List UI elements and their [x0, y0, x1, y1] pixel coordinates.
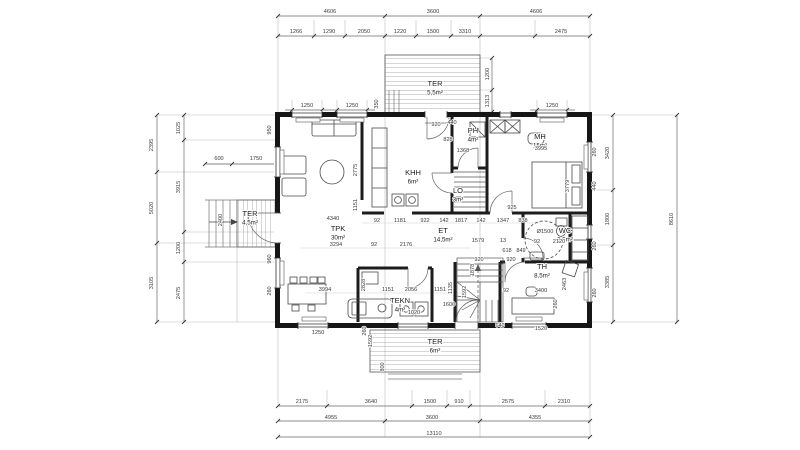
dimension-label: 1500	[427, 29, 439, 35]
dimension-label: 2575	[502, 399, 514, 405]
dimension-label: 1520	[535, 326, 547, 332]
dimension-label: 4955	[325, 415, 337, 421]
room-area-label: 4,5m²	[242, 220, 258, 227]
dryer	[406, 194, 418, 206]
dimension-label: 1151	[434, 287, 446, 293]
dimension-label: 4355	[529, 415, 541, 421]
khh-door	[432, 173, 452, 193]
sofa	[312, 120, 356, 136]
dimension-label: 1266	[290, 29, 302, 35]
window	[292, 111, 322, 118]
dimension-label: 920	[431, 122, 440, 128]
dimension-label: 260	[553, 299, 559, 308]
room-area-label: 14,5m²	[433, 237, 452, 244]
armchair	[282, 156, 306, 174]
dimension-label: 4606	[530, 9, 542, 15]
dimension-label: 440	[447, 120, 456, 126]
dimension-label: 1600	[443, 302, 455, 308]
dimension-label: 350	[374, 99, 380, 108]
dimension-label: 1592	[368, 335, 374, 347]
dimension-label: 2175	[296, 399, 308, 405]
kitchen-island	[348, 299, 392, 318]
dimension-label: 92	[503, 288, 509, 294]
dimension-label: 2120	[553, 239, 565, 245]
tekn-door	[408, 268, 428, 288]
room-area-label: 5,5m²	[427, 90, 443, 97]
window	[537, 111, 567, 118]
dimension-label: 2050	[358, 29, 370, 35]
dimension-label: 2400	[218, 214, 224, 226]
dimension-label: 3915	[176, 181, 182, 193]
room-name-label: TER	[243, 209, 259, 218]
dimension-label: 1878	[470, 264, 476, 276]
dimension-label: 1579	[472, 238, 484, 244]
window	[337, 111, 367, 118]
entrance-door	[427, 117, 449, 139]
dimension-label: 3400	[535, 288, 547, 294]
terrace-decks	[237, 55, 480, 379]
dimension-label: 142	[476, 218, 485, 224]
wardrobe	[490, 120, 505, 133]
dimension-label: 2310	[558, 399, 570, 405]
dimension-label: 2395	[149, 139, 155, 151]
dimension-label: 1151	[353, 199, 359, 211]
dimension-label: 1592	[462, 286, 468, 298]
dimension-label: 3994	[319, 287, 331, 293]
dimension-label: 2828	[361, 279, 367, 291]
dimension-label: 142	[439, 218, 448, 224]
dimension-label: 1220	[394, 29, 406, 35]
dimension-label: 849	[516, 248, 525, 254]
dimension-label: 1250	[312, 330, 324, 336]
room-name-label: PH	[468, 126, 478, 135]
dimension-label: 2176	[400, 242, 412, 248]
shelving	[572, 216, 588, 260]
dining-table	[288, 277, 326, 311]
room-area-label: 6m²	[430, 348, 441, 355]
dimension-label: 1025	[176, 122, 182, 134]
dimension-label: 3995	[535, 146, 547, 152]
dimension-label: 1250	[346, 103, 358, 109]
room-name-label: ET	[438, 226, 448, 235]
dimension-label: 3640	[365, 399, 377, 405]
window	[500, 111, 511, 118]
dimension-label: 1368	[457, 148, 469, 154]
door-opening	[425, 111, 447, 118]
dimension-label: 3385	[605, 276, 611, 288]
dimension-label: 4340	[327, 216, 339, 222]
dimension-label: 2056	[405, 287, 417, 293]
dimension-label: 3105	[149, 277, 155, 289]
dimension-label: 1200	[485, 68, 491, 80]
dimension-label: 800	[380, 362, 386, 371]
dimension-label: Ø1500	[537, 229, 554, 235]
room-name-label: TH	[537, 262, 547, 271]
dimension-label: 3600	[427, 9, 439, 15]
dimension-label: 1181	[394, 218, 406, 224]
room-name-label: TER	[428, 337, 444, 346]
window	[298, 322, 328, 329]
dimension-label: 92	[374, 218, 380, 224]
dimension-label: 640	[495, 323, 504, 329]
dimension-label: 260	[592, 241, 598, 250]
bottom-deck-steps	[388, 374, 462, 379]
dimension-label: 920	[506, 257, 515, 263]
dimension-label: 3310	[459, 29, 471, 35]
dimension-label: 5020	[149, 202, 155, 214]
dimension-label: 828	[443, 137, 452, 143]
room-name-label: TPK	[331, 224, 346, 233]
dimension-label: 838	[518, 218, 527, 224]
dimension-label: 1200	[176, 242, 182, 254]
dimension-label: 1313	[485, 95, 491, 107]
room-name-label: TER	[428, 79, 444, 88]
dimension-label: 3779	[565, 180, 571, 192]
dimension-label: 1347	[497, 218, 509, 224]
room-area-label: 4m²	[395, 307, 406, 314]
dimension-label: 2775	[353, 164, 359, 176]
terrace-bottom-deck	[370, 330, 480, 372]
room-name-label: KHH	[405, 168, 421, 177]
dimension-label: 260	[267, 286, 273, 295]
dimension-label: 600	[214, 156, 223, 162]
dimension-label: 13110	[426, 431, 441, 437]
dimension-label: 3294	[330, 242, 342, 248]
dimension-label: 3420	[605, 147, 611, 159]
floor-plan-drawing: TPK30m²KHH6m²PH4m²MH15m²ET14,5m²WC3,5m²T…	[0, 0, 800, 450]
window	[398, 322, 428, 329]
dimension-label: 260	[592, 147, 598, 156]
room-area-label: 30m²	[331, 235, 345, 242]
dimension-label: 960	[267, 254, 273, 263]
wardrobe	[505, 120, 520, 133]
room-name-label: TEKN	[390, 296, 410, 305]
dimension-label: 2463	[562, 278, 568, 290]
dimension-label: 3600	[426, 415, 438, 421]
dimension-label: 1151	[382, 287, 394, 293]
desk	[512, 298, 554, 314]
dimension-label: 1500	[424, 399, 436, 405]
dimension-label: 925	[507, 205, 516, 211]
dimension-label: 1250	[546, 103, 558, 109]
room-area-label: 4m²	[468, 137, 479, 144]
room-area-label: 8,5m²	[534, 273, 550, 280]
dimension-label: 2475	[555, 29, 567, 35]
round-rug	[320, 160, 344, 184]
dimension-label: 1800	[605, 213, 611, 225]
window	[586, 225, 593, 239]
door-opening	[455, 322, 478, 329]
dimension-label: 92	[371, 242, 377, 248]
dimension-label: 8610	[669, 213, 675, 225]
dimension-label: 2475	[176, 287, 182, 299]
dimension-label: 92	[534, 239, 540, 245]
room-name-label: LO	[453, 186, 463, 195]
dimension-label: 618	[502, 248, 511, 254]
th-door	[505, 262, 525, 282]
room-area-label: 3m²	[453, 197, 464, 204]
dimension-label: 260	[592, 288, 598, 297]
floor-plan-page: TPK30m²KHH6m²PH4m²MH15m²ET14,5m²WC3,5m²T…	[0, 0, 800, 450]
door-opening	[274, 213, 281, 243]
dimension-label: 260	[362, 326, 368, 335]
room-area-label: 6m²	[408, 179, 419, 186]
dimension-label: 910	[454, 399, 463, 405]
dimension-label: 1750	[250, 156, 262, 162]
room-name-label: MH	[534, 132, 546, 141]
dimension-label: 920	[474, 257, 483, 263]
dimension-label: 922	[420, 218, 429, 224]
dimension-label: 1250	[301, 103, 313, 109]
washer	[392, 194, 404, 206]
bed	[532, 162, 582, 208]
dimension-label: 950	[267, 125, 273, 134]
dimension-label: 440	[592, 181, 598, 190]
armchair	[282, 178, 306, 196]
dimension-label: 1020	[408, 310, 420, 316]
dimension-label: 13	[500, 238, 506, 244]
room-name-label: WC	[559, 226, 572, 235]
dimension-label: 1290	[323, 29, 335, 35]
dimension-label: 1817	[455, 218, 467, 224]
dimension-label: 1135	[448, 282, 454, 294]
dimension-label: 4606	[324, 9, 336, 15]
